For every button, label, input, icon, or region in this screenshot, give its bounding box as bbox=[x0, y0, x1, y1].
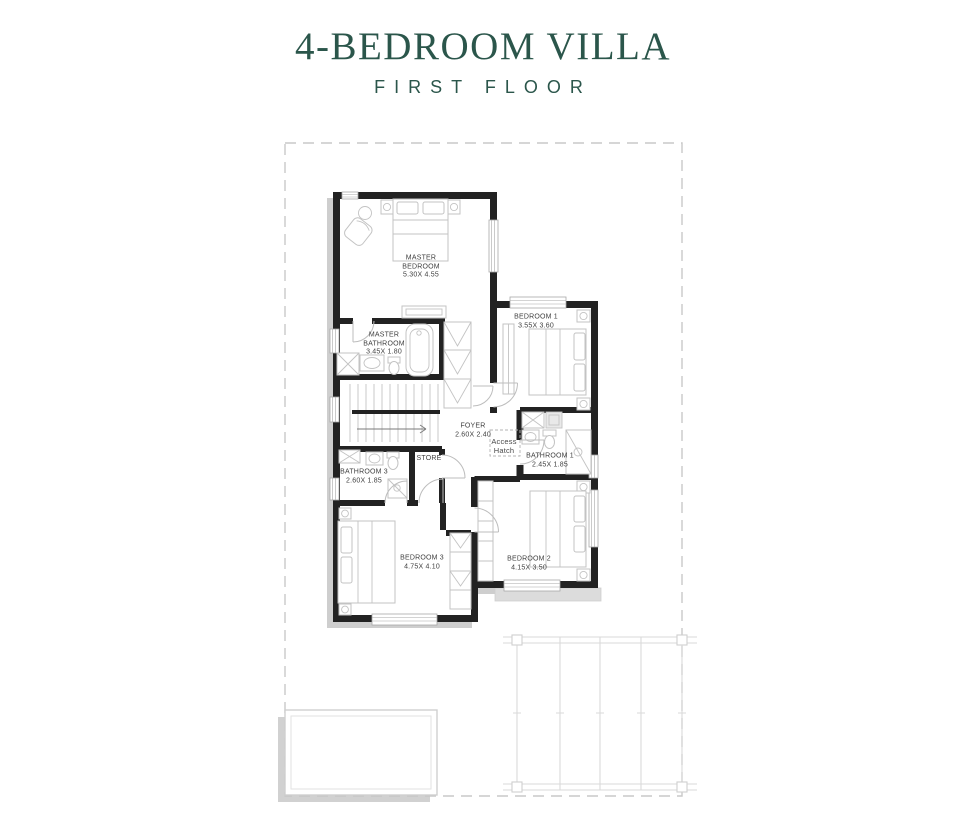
closet-bedroom2 bbox=[478, 481, 493, 581]
room-label-bedroom-1: BEDROOM 1 3.55X 3.60 bbox=[514, 314, 558, 331]
closet-bedroom3 bbox=[450, 533, 471, 609]
stair-rail bbox=[352, 410, 440, 414]
duct-box bbox=[522, 412, 544, 428]
window-bedroom3-bottom bbox=[372, 614, 437, 625]
wardrobe-hall bbox=[444, 322, 471, 408]
room-label-bedroom-3: BEDROOM 3 4.75X 4.10 bbox=[400, 555, 444, 572]
terrace-outline bbox=[278, 710, 437, 802]
room-label-bathroom-1: BATHROOM 1 2.45X 1.85 bbox=[526, 453, 574, 470]
window-left-bathroom3 bbox=[330, 478, 339, 500]
floor-plan-svg bbox=[0, 0, 966, 832]
window-top-left bbox=[342, 192, 358, 199]
window-left-bathroom bbox=[330, 329, 339, 353]
room-label-foyer: FOYER 2.60X 2.40 bbox=[455, 423, 491, 440]
page: 4-BEDROOM VILLA FIRST FLOOR bbox=[0, 0, 966, 832]
window-master-right bbox=[489, 220, 498, 272]
window-bedroom2-right bbox=[589, 490, 598, 547]
room-label-master-bedroom: MASTER BEDROOM 5.30X 4.55 bbox=[402, 254, 440, 280]
pergola-grid bbox=[503, 635, 697, 792]
shower-master bbox=[337, 353, 359, 375]
window-left-stair bbox=[330, 397, 339, 422]
duct-box-bathroom3 bbox=[339, 450, 360, 463]
room-label-bedroom-2: BEDROOM 2 4.15X 3.50 bbox=[507, 556, 551, 573]
room-label-master-bathroom: MASTER BATHROOM 3.45X 1.80 bbox=[363, 331, 405, 357]
room-label-bathroom-3: BATHROOM 3 2.60X 1.85 bbox=[340, 469, 388, 486]
floor-plan: MASTER BEDROOM 5.30X 4.55 MASTER BATHROO… bbox=[0, 0, 966, 832]
window-bedroom1-top bbox=[510, 297, 566, 308]
room-label-access-hatch: Access Hatch bbox=[491, 437, 516, 455]
window-bedroom2-bottom bbox=[504, 580, 560, 591]
room-label-store: STORE bbox=[417, 455, 442, 464]
